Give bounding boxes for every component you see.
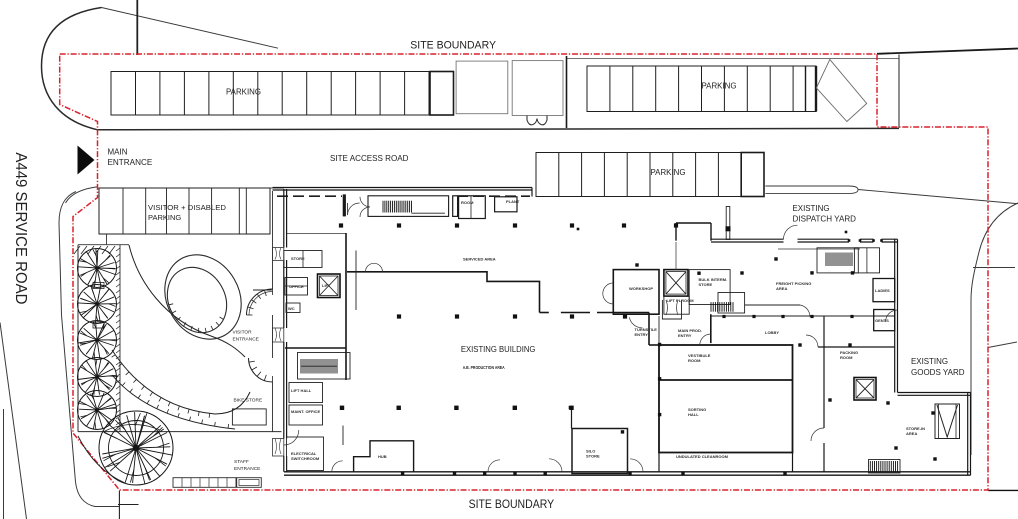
svg-text:VISITOR: VISITOR [233, 330, 253, 336]
svg-text:DISPATCH YARD: DISPATCH YARD [793, 214, 857, 224]
svg-text:SITE BOUNDARY: SITE BOUNDARY [410, 40, 496, 52]
svg-text:SERVICED AREA: SERVICED AREA [463, 257, 496, 262]
svg-text:LIFT HALL: LIFT HALL [291, 388, 312, 393]
svg-text:ROOM: ROOM [688, 358, 701, 363]
svg-text:PLANT: PLANT [506, 199, 520, 204]
svg-text:PARKING: PARKING [651, 168, 686, 177]
svg-text:LIFT: LIFT [322, 283, 331, 288]
svg-text:LADIES: LADIES [875, 288, 890, 293]
svg-text:ENTRANCE: ENTRANCE [234, 466, 260, 472]
svg-text:LOBBY: LOBBY [765, 330, 779, 335]
svg-text:WC: WC [288, 306, 295, 311]
svg-text:SITE ACCESS ROAD: SITE ACCESS ROAD [330, 153, 409, 163]
svg-text:ENTRY: ENTRY [678, 333, 692, 338]
svg-text:WORKSHOP: WORKSHOP [629, 286, 653, 291]
svg-text:EXISTING: EXISTING [793, 203, 830, 213]
svg-text:STORE: STORE [699, 282, 713, 287]
svg-text:AREA: AREA [906, 431, 917, 436]
svg-text:ROOM: ROOM [461, 200, 474, 205]
svg-text:PARKING: PARKING [148, 213, 181, 222]
svg-text:PARKING: PARKING [702, 82, 737, 91]
svg-text:STAFF: STAFF [234, 459, 249, 465]
svg-text:OFFICE: OFFICE [289, 284, 304, 289]
svg-text:ENTRANCE: ENTRANCE [108, 158, 153, 167]
svg-text:BIKE STORE: BIKE STORE [234, 398, 263, 404]
svg-text:A449 SERVICE ROAD: A449 SERVICE ROAD [12, 152, 29, 304]
svg-text:LIFT PLROOM: LIFT PLROOM [667, 298, 695, 303]
svg-text:EXISTING BUILDING: EXISTING BUILDING [461, 344, 536, 354]
svg-text:STORE: STORE [291, 256, 305, 261]
svg-text:ENTRY: ENTRY [635, 332, 649, 337]
svg-text:SWITCHROOM: SWITCHROOM [291, 456, 320, 461]
svg-text:AREA: AREA [776, 286, 787, 291]
svg-text:HUB: HUB [378, 454, 387, 459]
svg-text:PARKING: PARKING [226, 88, 261, 97]
svg-text:MAINT. OFFICE: MAINT. OFFICE [291, 409, 320, 414]
svg-text:GENTS: GENTS [875, 318, 889, 323]
svg-text:ENTRANCE: ENTRANCE [233, 337, 259, 343]
svg-text:ROOM: ROOM [840, 355, 853, 360]
svg-text:STORE: STORE [586, 454, 600, 459]
svg-text:A.B. PRODUCTION AREA: A.B. PRODUCTION AREA [463, 365, 506, 370]
svg-text:VISITOR + DISABLED: VISITOR + DISABLED [148, 203, 227, 212]
svg-text:UNDULATED CLEANROOM: UNDULATED CLEANROOM [676, 454, 729, 459]
svg-text:HALL: HALL [688, 412, 699, 417]
svg-text:SITE BOUNDARY: SITE BOUNDARY [469, 499, 555, 511]
svg-text:EXISTING: EXISTING [911, 356, 948, 366]
svg-text:MAIN: MAIN [108, 148, 128, 157]
svg-text:GOODS YARD: GOODS YARD [911, 367, 965, 377]
